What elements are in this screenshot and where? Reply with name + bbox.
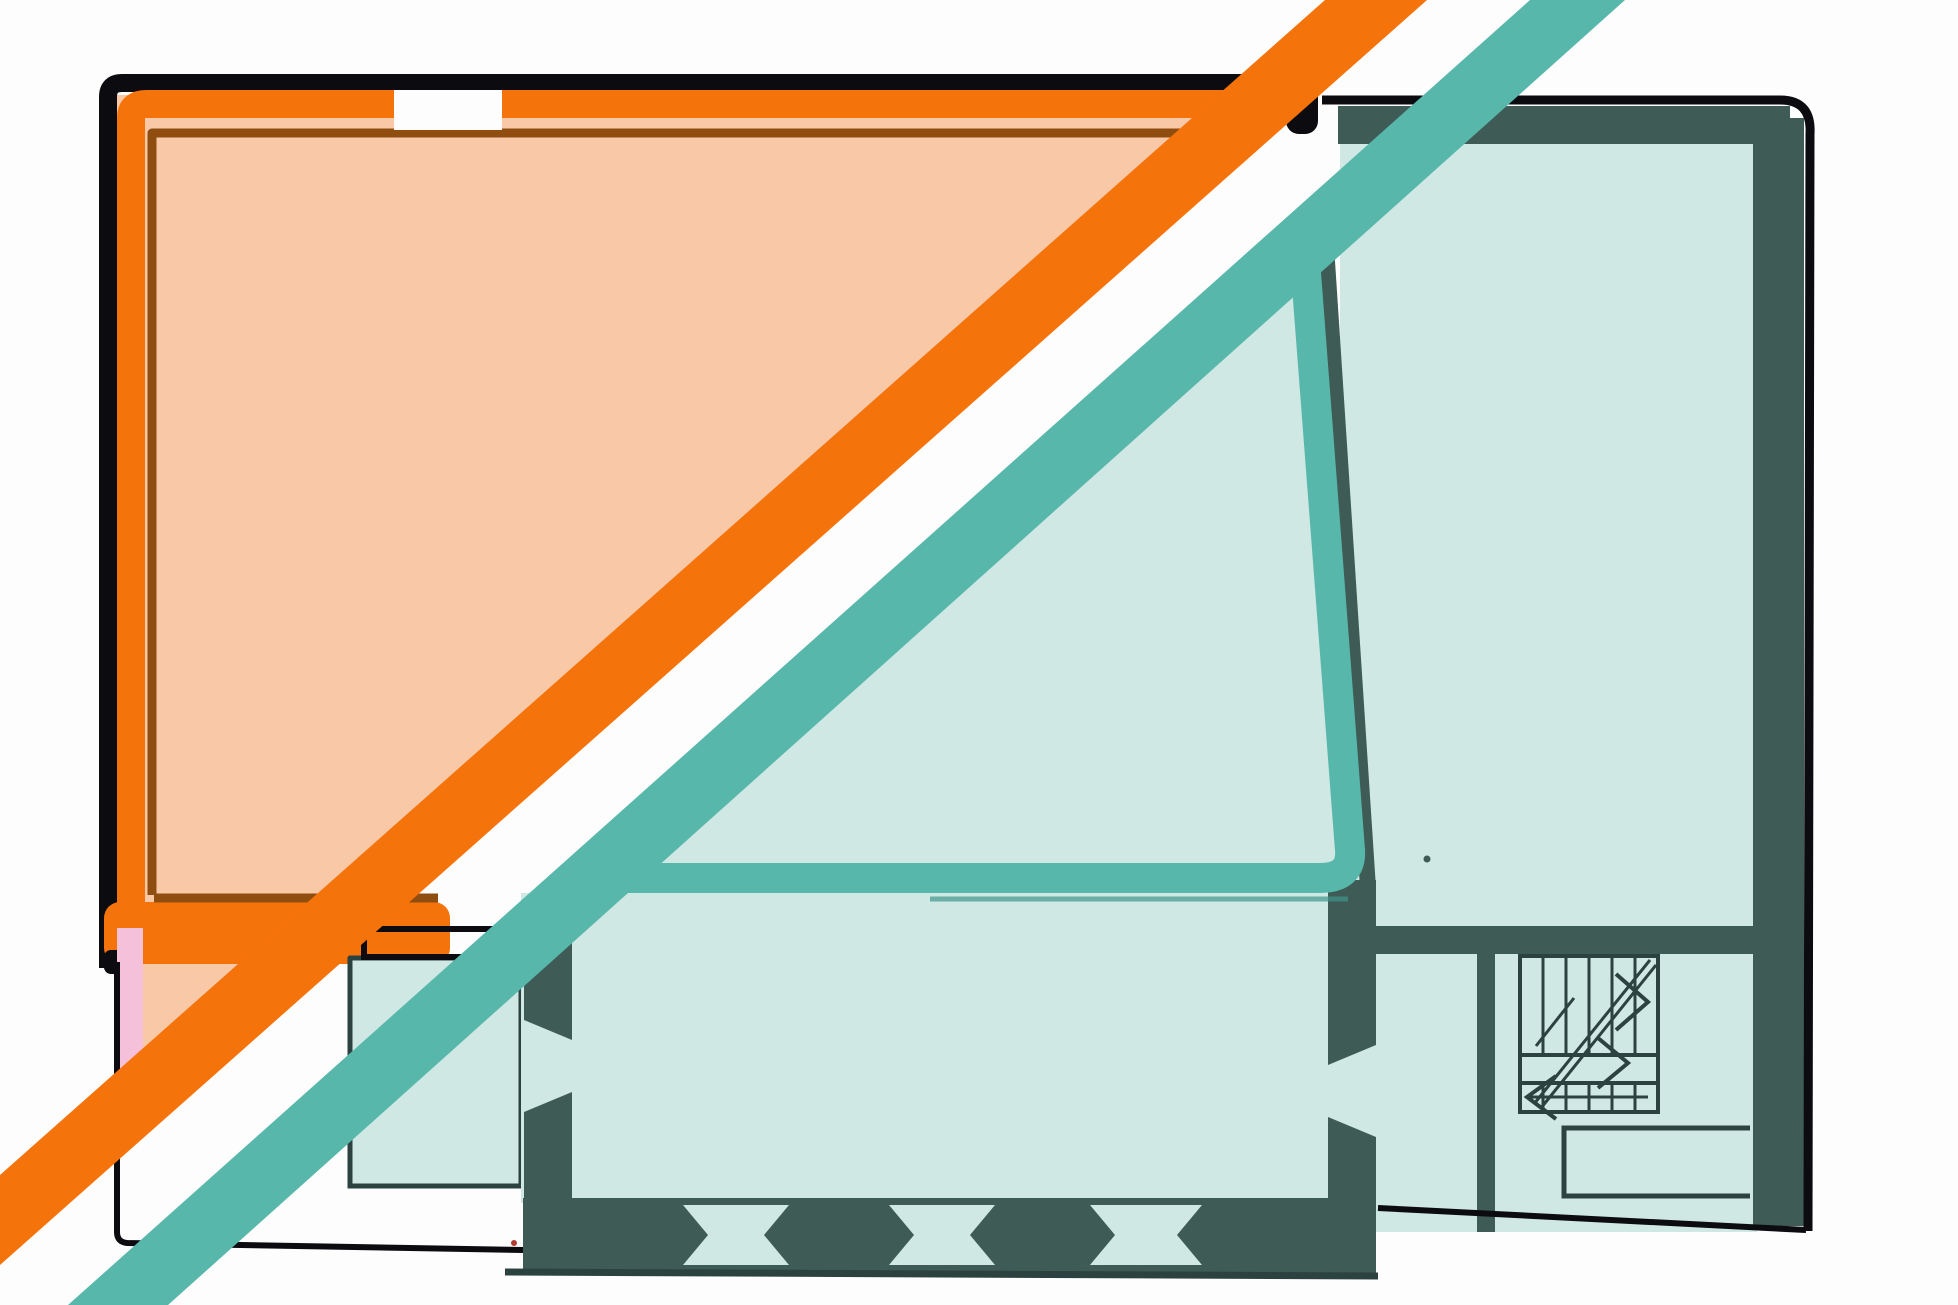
right-zone-bottom-border <box>1374 926 1759 954</box>
central-room-right-wall <box>1328 880 1376 1210</box>
central-room-fill <box>521 893 1376 1203</box>
red-speck <box>511 1240 517 1246</box>
bottom-wall-edge-line <box>505 1272 1378 1276</box>
top-border-door-notch <box>394 90 502 130</box>
floor-plan-drawing <box>0 0 1958 1305</box>
stair-room-left-wall <box>1477 954 1495 1232</box>
right-zone-right-border <box>1753 118 1804 1226</box>
right-zone-fill <box>1340 140 1757 940</box>
illustration-canvas <box>0 0 1958 1305</box>
pink-wall-sliver <box>117 928 143 1070</box>
ink-speck <box>1424 856 1431 863</box>
